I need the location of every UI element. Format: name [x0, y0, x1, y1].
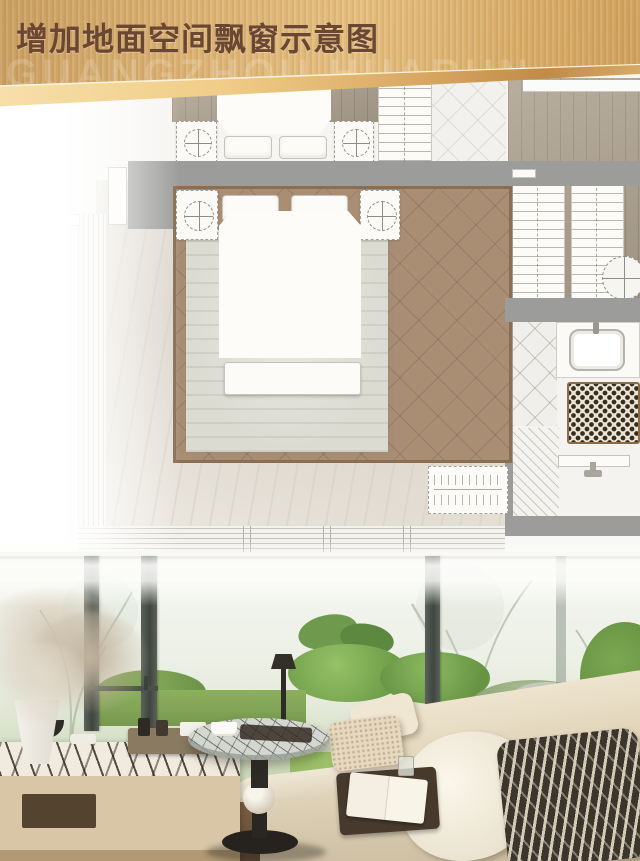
upper-pillow — [224, 136, 272, 159]
upper-nightstand — [334, 121, 374, 163]
convector-fins — [434, 495, 502, 505]
cushion-zebra — [496, 727, 640, 861]
cabinet-plinth — [0, 850, 240, 861]
round-stool — [602, 256, 640, 300]
upper-nightstand — [176, 121, 217, 163]
wardrobe-column — [512, 180, 565, 300]
lamp-pole — [281, 668, 286, 724]
wall — [505, 298, 640, 322]
bed-bench — [224, 362, 361, 395]
door-leaf — [512, 169, 536, 178]
nightstand — [176, 190, 218, 240]
convector-unit — [428, 466, 508, 514]
bedside-lamp-icon — [184, 201, 214, 231]
door-handle-icon — [590, 462, 596, 471]
main-bed — [219, 211, 361, 358]
door-swing-hatch — [513, 428, 559, 522]
convector-line — [434, 489, 502, 490]
bottle — [138, 718, 150, 736]
sink — [569, 329, 625, 371]
glass-cup — [398, 756, 414, 776]
plan-left-fade — [0, 60, 180, 585]
teacup — [211, 722, 237, 734]
bottle — [156, 720, 168, 736]
wall — [128, 161, 640, 186]
plan-photo-fade — [0, 540, 640, 606]
wall — [505, 516, 640, 536]
cushion-textured — [327, 714, 405, 772]
upper-pillow — [279, 136, 327, 159]
mosaic-mat — [567, 382, 640, 444]
bathroom-tile — [513, 322, 557, 426]
top-right-sill — [523, 80, 640, 92]
door-handle-icon — [584, 470, 602, 477]
cabinet-shelf-notch — [22, 794, 96, 828]
faucet — [593, 322, 599, 334]
convector-fins — [434, 475, 502, 485]
small-dish — [70, 734, 96, 744]
nightstand — [360, 190, 400, 240]
bedside-lamp-icon — [342, 129, 370, 157]
table-stem — [252, 812, 267, 838]
upper-wardrobe — [378, 84, 432, 164]
bedside-lamp-icon — [367, 201, 397, 231]
page-title: 增加地面空间飘窗示意图 — [16, 14, 379, 60]
bedside-lamp-icon — [184, 129, 212, 157]
open-book — [346, 772, 428, 824]
promo-image: GUANGZHOU HUARUN 增加地面空间飘窗示意图 — [0, 0, 640, 861]
